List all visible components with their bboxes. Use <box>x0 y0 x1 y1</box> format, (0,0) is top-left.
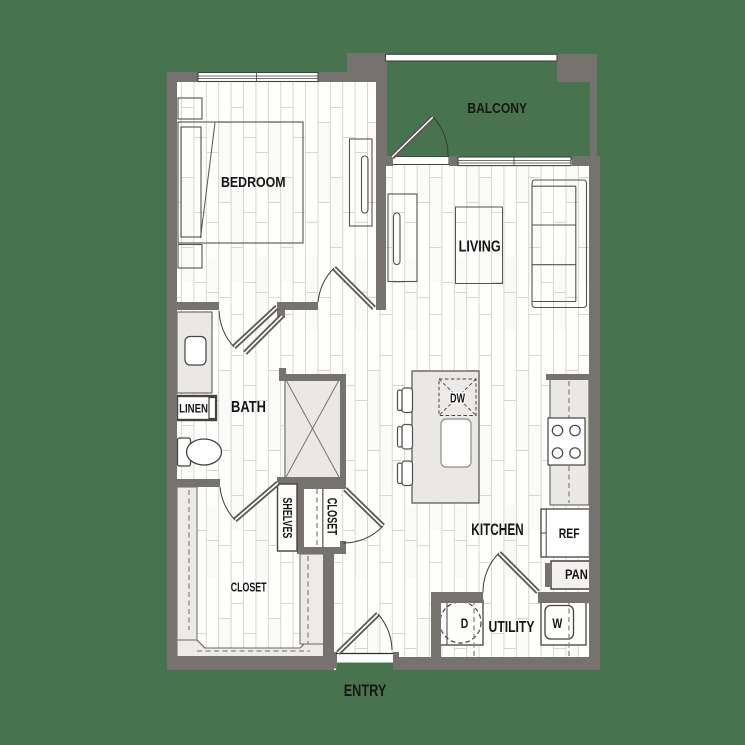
svg-text:W: W <box>552 615 562 631</box>
svg-text:D: D <box>461 615 469 631</box>
svg-text:SHELVES: SHELVES <box>280 497 294 538</box>
svg-text:BATH: BATH <box>231 399 266 416</box>
svg-text:UTILITY: UTILITY <box>489 618 535 636</box>
svg-text:KITCHEN: KITCHEN <box>471 521 523 539</box>
svg-text:LIVING: LIVING <box>459 238 501 256</box>
svg-text:PAN: PAN <box>565 567 588 582</box>
svg-text:LINEN: LINEN <box>179 403 208 416</box>
svg-text:BALCONY: BALCONY <box>467 100 527 117</box>
svg-text:CLOSET: CLOSET <box>231 581 267 595</box>
svg-text:ENTRY: ENTRY <box>344 683 387 701</box>
svg-text:BEDROOM: BEDROOM <box>221 174 286 190</box>
svg-text:DW: DW <box>450 392 466 406</box>
svg-text:CLOSET: CLOSET <box>324 498 338 535</box>
svg-text:REF: REF <box>559 526 580 542</box>
